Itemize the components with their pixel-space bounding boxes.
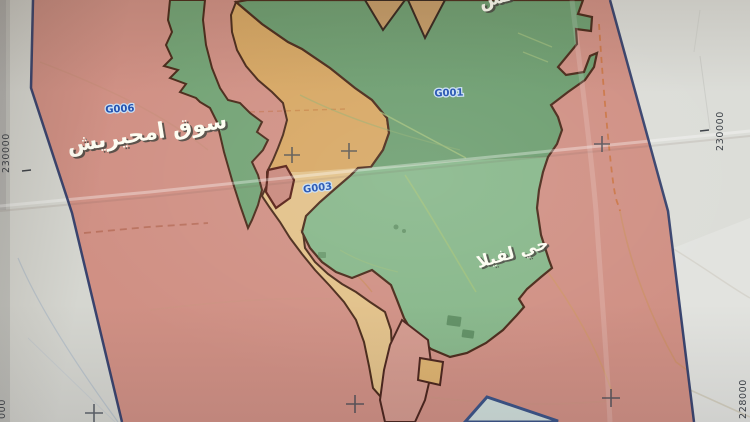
map-photo: 230000 230000 000 228000 سوق امحيريش سوق… bbox=[0, 0, 750, 422]
coordinate-label-left: 230000 bbox=[1, 133, 12, 173]
vegetation-patch bbox=[462, 329, 475, 339]
coordinate-label-bottom-right: 228000 bbox=[738, 379, 749, 419]
zone-code-g006: G006 bbox=[105, 103, 135, 116]
vegetation-dot bbox=[402, 229, 406, 233]
coordinate-label-bottom-left: 000 bbox=[0, 399, 8, 419]
orange-parcel bbox=[418, 358, 443, 385]
coordinate-label-right: 230000 bbox=[715, 111, 726, 151]
zone-code-g001: G001 bbox=[434, 87, 463, 99]
vegetation-patch bbox=[446, 315, 461, 327]
vegetation-dot bbox=[394, 225, 399, 230]
paper-left-edge-dark bbox=[0, 0, 6, 210]
vegetation-patch bbox=[318, 252, 326, 258]
zoning-map-svg: 230000 230000 000 228000 سوق امحيريش سوق… bbox=[0, 0, 750, 422]
